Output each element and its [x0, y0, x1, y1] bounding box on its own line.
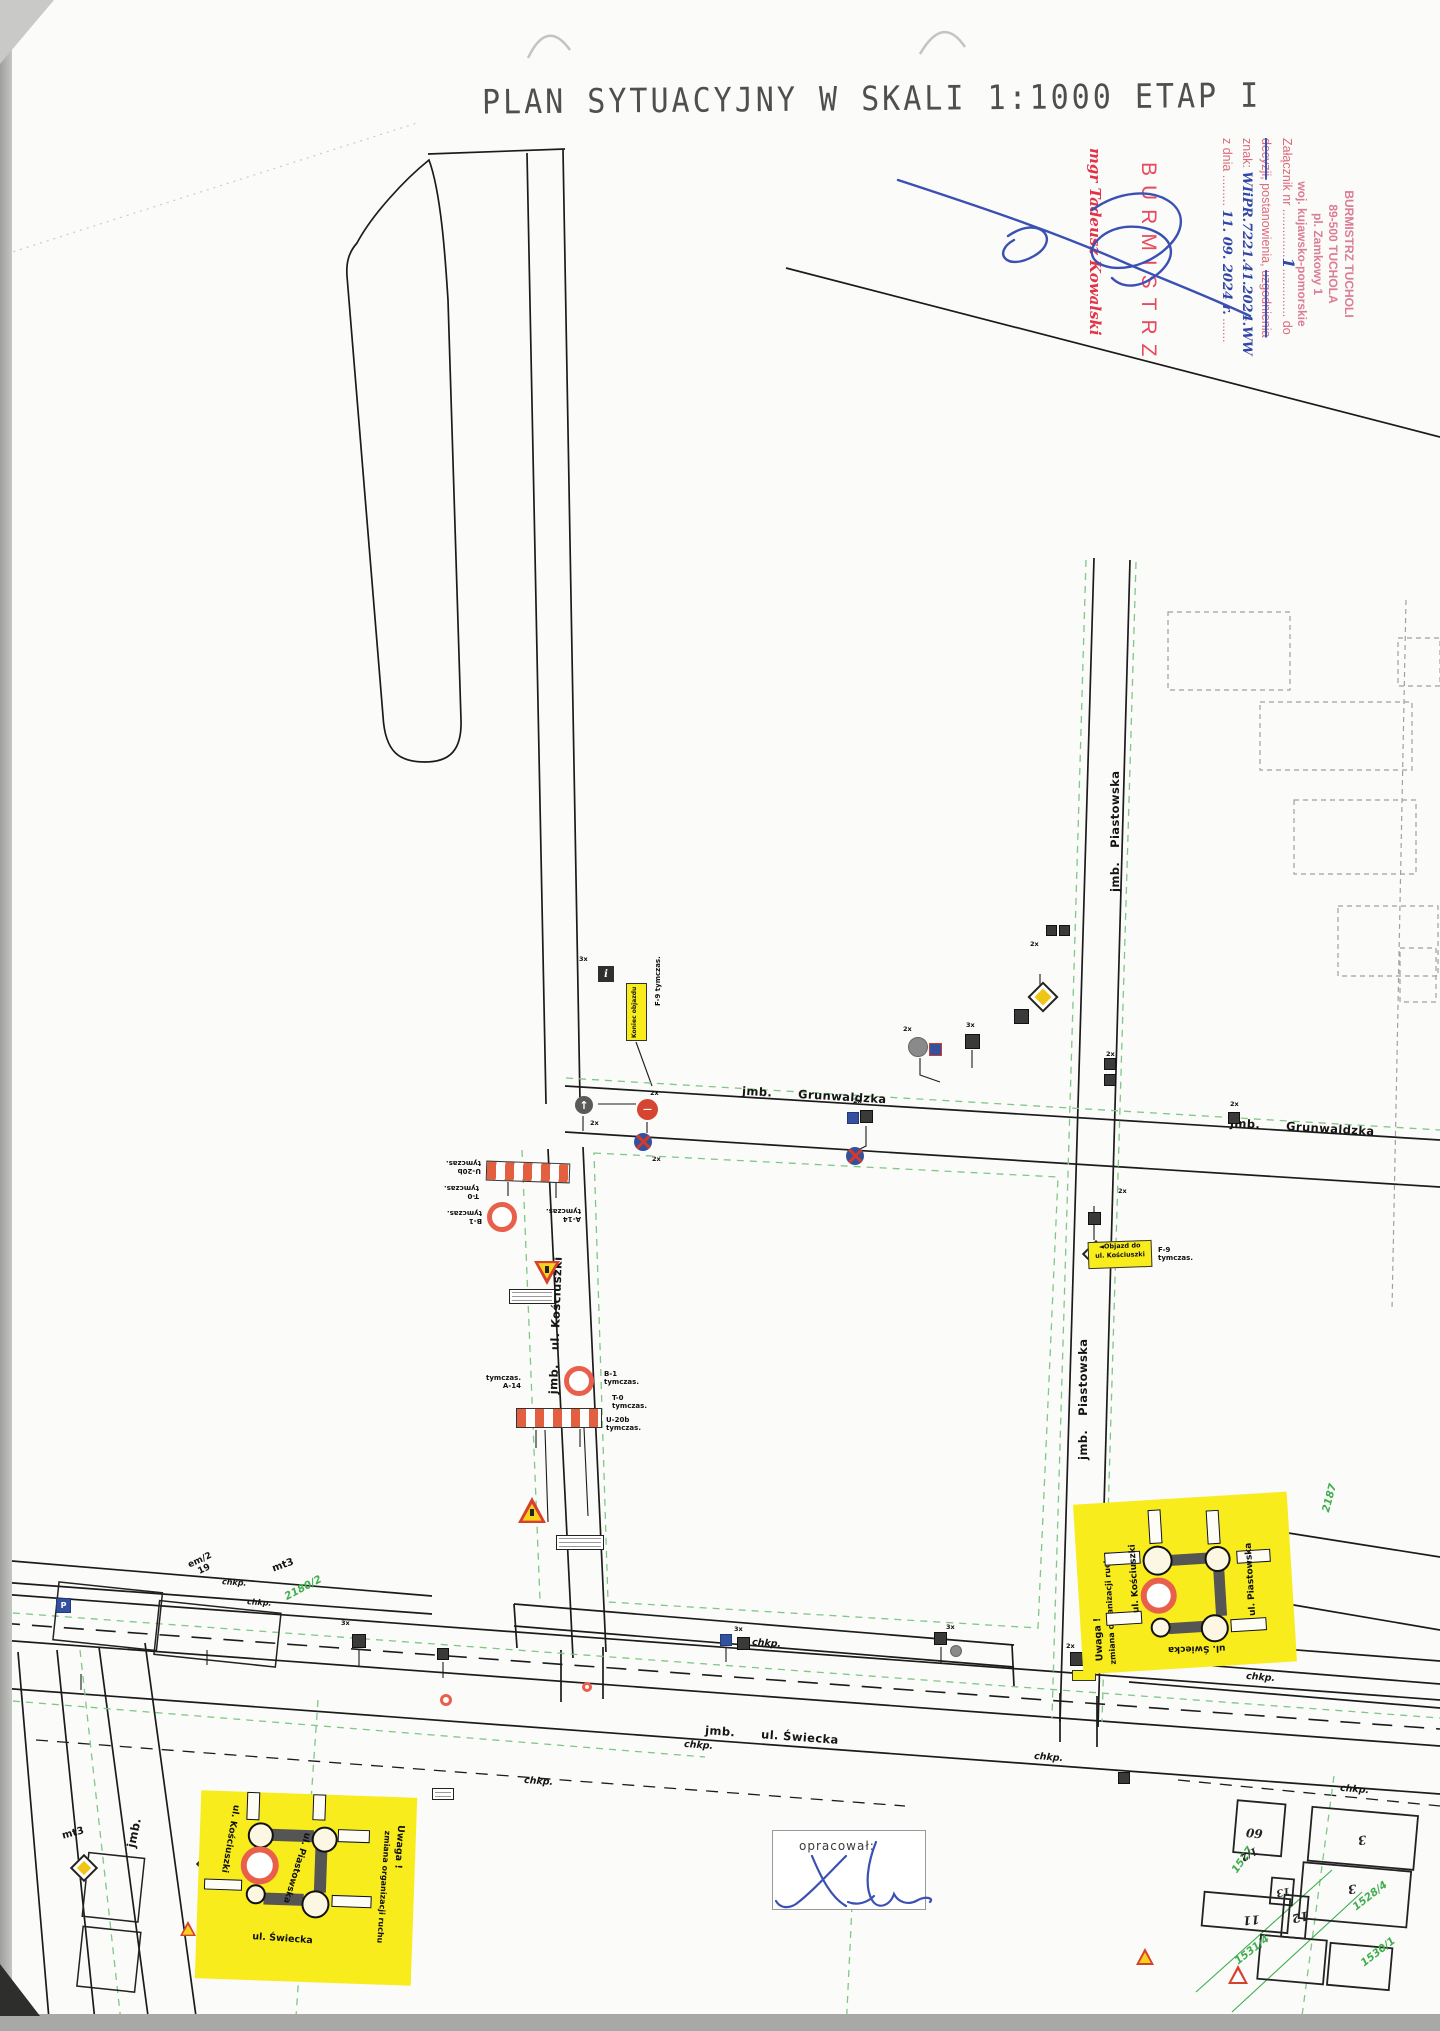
mandatory-ahead-sign-icon: [575, 1096, 593, 1114]
dot-marker-icon: [950, 1645, 962, 1657]
road-closed-sign-icon: [440, 1694, 452, 1706]
sign-label: T-0tymczas.: [444, 1183, 479, 1200]
office-stamp-line: 89-500 TUCHOLA: [1325, 168, 1341, 340]
author-label: opracował:: [799, 1839, 925, 1853]
sidewalk-label: chkp.: [247, 1597, 272, 1608]
dotted-line: .........: [1220, 175, 1234, 206]
date-value-handwritten: 11. 09. 2024 r.: [1219, 210, 1234, 315]
sidewalk-label: chkp.: [524, 1775, 554, 1788]
closed-section-marker: [240, 1846, 279, 1885]
road-closed-sign-icon: [582, 1682, 592, 1692]
burmistrz-stamp: BURMISTRZ: [1130, 162, 1160, 378]
no-stopping-sign-icon: [846, 1147, 864, 1165]
sign-label: tymczas.A-14: [486, 1374, 521, 1391]
square-sign-icon: [1088, 1212, 1101, 1225]
notice-street: ul. Świecka: [252, 1931, 313, 1946]
square-sign-icon: [352, 1634, 366, 1648]
sign-count-label: 3x: [946, 1624, 955, 1631]
attachment-stamp: Załącznik nr ..............1............…: [1216, 138, 1300, 390]
scanned-plan-page: PLAN SYTUACYJNY W SKALI 1:1000 ETAP I Za…: [0, 0, 1440, 2031]
sign-count-label: 2x: [1066, 1643, 1075, 1650]
sign-count-label: 3x: [734, 1626, 743, 1633]
notice-zmiana: zmiana organizacji ruchu: [375, 1830, 392, 1943]
page-title: PLAN SYTUACYJNY W SKALI 1:1000 ETAP I: [482, 77, 1262, 123]
detour-end-board: Koniec objazdu: [626, 983, 647, 1041]
sign-count-label: 3x: [966, 1022, 975, 1029]
no-entry-sign-icon: [637, 1099, 658, 1120]
blue-square-sign-icon: [929, 1043, 942, 1056]
notice-street: ul. Kościuszki: [219, 1804, 241, 1874]
square-sign-icon: [934, 1632, 947, 1645]
sidewalk-label: chkp.: [752, 1637, 782, 1650]
sidewalk-label: chkp.: [222, 1577, 247, 1588]
scan-edge-bottom: [0, 2014, 1440, 2031]
detour-table-sign-icon: [432, 1788, 454, 1800]
road-closed-sign-icon: [564, 1366, 594, 1396]
square-sign-icon: [1104, 1074, 1116, 1086]
sidewalk-label: chkp.: [1034, 1751, 1064, 1764]
roadworks-barrier-icon: [486, 1161, 571, 1184]
znak-label: znak:: [1240, 138, 1254, 168]
sign-count-label: 3x: [341, 1620, 350, 1627]
no-stopping-sign-icon: [634, 1133, 652, 1151]
closed-section-marker: [1140, 1577, 1178, 1615]
building-number: 60: [1245, 1825, 1263, 1840]
office-stamp-line: BURMISTRZ TUCHOLI: [1340, 168, 1356, 340]
street-label-piastowska-bottom: jmb.Piastowska: [1076, 1339, 1090, 1460]
square-sign-icon: [1059, 925, 1070, 936]
square-sign-icon: [1118, 1772, 1130, 1784]
sidewalk-label: chkp.: [1246, 1671, 1276, 1684]
building-number: 3: [1347, 1881, 1357, 1896]
scan-edge-left: [0, 0, 12, 2031]
square-sign-icon: [1014, 1009, 1029, 1024]
sign-count-label: 2x: [652, 1156, 661, 1163]
sign-label: U-20btymczas.: [606, 1416, 641, 1433]
square-sign-icon: [860, 1110, 873, 1123]
sign-label: T-0tymczas.: [612, 1394, 647, 1411]
sign-count-label: 2x: [590, 1120, 599, 1127]
sign-count-label: 2x: [853, 1098, 862, 1105]
square-sign-icon: [437, 1648, 449, 1660]
date-label: z dnia: [1220, 138, 1234, 171]
info-sign-icon: [598, 966, 614, 982]
sign-count-label: 2x: [1030, 941, 1039, 948]
road-closed-sign-icon: [487, 1202, 517, 1232]
sign-count-label: 2x: [650, 1090, 659, 1097]
author-box: opracował:: [772, 1830, 926, 1910]
sidewalk-label: chkp.: [684, 1739, 714, 1752]
sign-label: A-14tymczas.: [546, 1206, 581, 1223]
blue-square-sign-icon: [720, 1634, 732, 1646]
detour-table-sign-icon: [509, 1289, 555, 1304]
square-sign-icon: [737, 1637, 750, 1650]
street-label-piastowska-top: jmb.Piastowska: [1108, 771, 1122, 892]
dotted-line: .......: [1220, 318, 1234, 342]
sign-label: B-1tymczas.: [604, 1370, 639, 1387]
blue-square-sign-icon: [847, 1112, 859, 1124]
square-sign-icon: [1228, 1112, 1240, 1124]
znak-value-handwritten: WIiPR.7221.41.2024.WW: [1239, 171, 1254, 355]
signer-name-stamp: mgr Tadeusz Kowalski: [1078, 148, 1104, 388]
office-stamp-line: pl. Zamkowy 1: [1309, 168, 1325, 340]
detour-table-sign-icon: [556, 1535, 604, 1550]
struck-word-decyzji: decyzji,: [1259, 138, 1273, 180]
sign-label: F-9 tymczas.: [654, 956, 662, 1006]
roadworks-barrier-icon: [516, 1408, 602, 1428]
dot-marker-icon: [908, 1037, 928, 1057]
sign-label: B-1tymczas.: [447, 1208, 482, 1225]
notice-box-left: Uwaga ! zmiana organizacji ruchu ul. Koś…: [195, 1790, 417, 1985]
sign-count-label: 2x: [903, 1026, 912, 1033]
square-sign-icon: [1104, 1058, 1116, 1070]
square-sign-icon: [965, 1034, 980, 1049]
sign-count-label: 2x: [1230, 1101, 1239, 1108]
word-postanowienia: postanowienia,: [1259, 183, 1273, 266]
building-number: 3: [1357, 1832, 1367, 1847]
notice-uwaga: Uwaga !: [392, 1825, 406, 1869]
sign-label: F-9tymczas.: [1158, 1246, 1193, 1263]
sign-count-label: 2x: [1118, 1188, 1127, 1195]
parking-sign-icon: [56, 1598, 71, 1613]
sign-label: U-20btymczas.: [446, 1158, 481, 1175]
detour-direction-board: ◄Objazd do ul. Kościuszki: [1088, 1240, 1153, 1269]
struck-word-uzgodnienia: uzgodnienia: [1259, 270, 1273, 337]
office-stamp-line: woj. kujawsko-pomorskie: [1294, 168, 1310, 340]
office-stamp: BURMISTRZ TUCHOLI 89-500 TUCHOLA pl. Zam…: [1292, 168, 1356, 340]
square-sign-icon: [1046, 925, 1057, 936]
notice-street: ul. Świecka: [1168, 1643, 1226, 1655]
sign-count-label: 3x: [579, 956, 588, 963]
notice-uwaga: Uwaga !: [1092, 1617, 1106, 1661]
building-number: 11: [1242, 1912, 1260, 1927]
notice-box-right: Uwaga ! zmiana organizacji ruchu ul. Koś…: [1073, 1492, 1297, 1675]
